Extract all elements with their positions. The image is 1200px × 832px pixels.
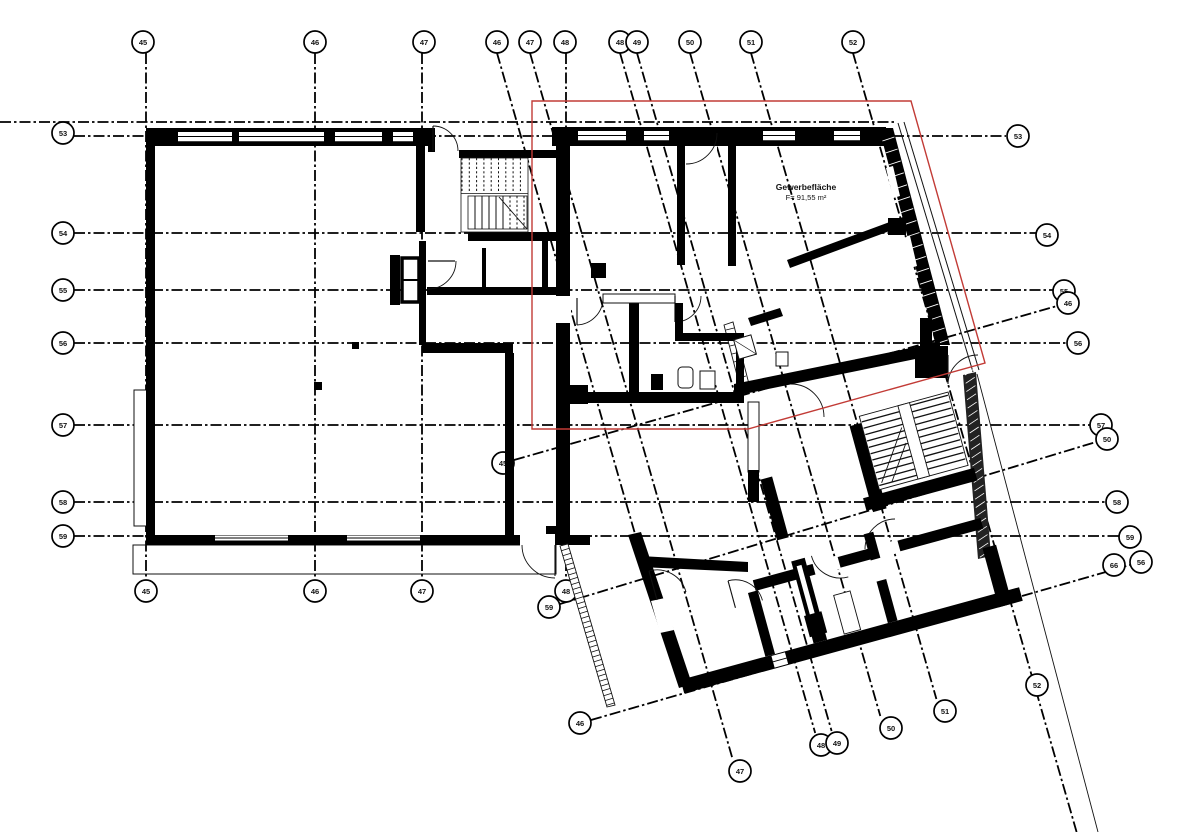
svg-text:57: 57 bbox=[59, 421, 67, 430]
svg-text:45: 45 bbox=[139, 38, 147, 47]
svg-text:55: 55 bbox=[59, 286, 67, 295]
svg-text:46: 46 bbox=[311, 587, 319, 596]
svg-text:59: 59 bbox=[545, 603, 553, 612]
svg-text:48: 48 bbox=[616, 38, 624, 47]
svg-text:53: 53 bbox=[1014, 132, 1022, 141]
svg-text:49: 49 bbox=[833, 739, 841, 748]
svg-text:47: 47 bbox=[736, 767, 744, 776]
svg-text:50: 50 bbox=[1103, 435, 1111, 444]
svg-text:46: 46 bbox=[576, 719, 584, 728]
svg-text:48: 48 bbox=[817, 741, 825, 750]
svg-text:46: 46 bbox=[1064, 299, 1072, 308]
svg-text:46: 46 bbox=[493, 38, 501, 47]
svg-text:54: 54 bbox=[59, 229, 68, 238]
svg-text:49: 49 bbox=[633, 38, 641, 47]
svg-text:56: 56 bbox=[59, 339, 67, 348]
svg-text:51: 51 bbox=[941, 707, 949, 716]
svg-text:52: 52 bbox=[1033, 681, 1041, 690]
svg-text:51: 51 bbox=[747, 38, 755, 47]
svg-text:45: 45 bbox=[142, 587, 150, 596]
svg-text:Gewerbefläche: Gewerbefläche bbox=[776, 182, 837, 192]
svg-text:54: 54 bbox=[1043, 231, 1052, 240]
svg-text:48: 48 bbox=[562, 587, 570, 596]
svg-text:47: 47 bbox=[418, 587, 426, 596]
svg-text:48: 48 bbox=[561, 38, 569, 47]
svg-text:66: 66 bbox=[1110, 561, 1118, 570]
svg-text:58: 58 bbox=[59, 498, 67, 507]
svg-text:52: 52 bbox=[849, 38, 857, 47]
svg-text:47: 47 bbox=[526, 38, 534, 47]
svg-text:47: 47 bbox=[420, 38, 428, 47]
svg-text:59: 59 bbox=[1126, 533, 1134, 542]
svg-text:46: 46 bbox=[311, 38, 319, 47]
svg-text:58: 58 bbox=[1113, 498, 1121, 507]
svg-text:53: 53 bbox=[59, 129, 67, 138]
svg-text:F= 91,55 m²: F= 91,55 m² bbox=[786, 193, 827, 202]
svg-text:59: 59 bbox=[59, 532, 67, 541]
svg-text:50: 50 bbox=[887, 724, 895, 733]
svg-text:50: 50 bbox=[686, 38, 694, 47]
svg-text:56: 56 bbox=[1074, 339, 1082, 348]
svg-text:56: 56 bbox=[1137, 558, 1145, 567]
